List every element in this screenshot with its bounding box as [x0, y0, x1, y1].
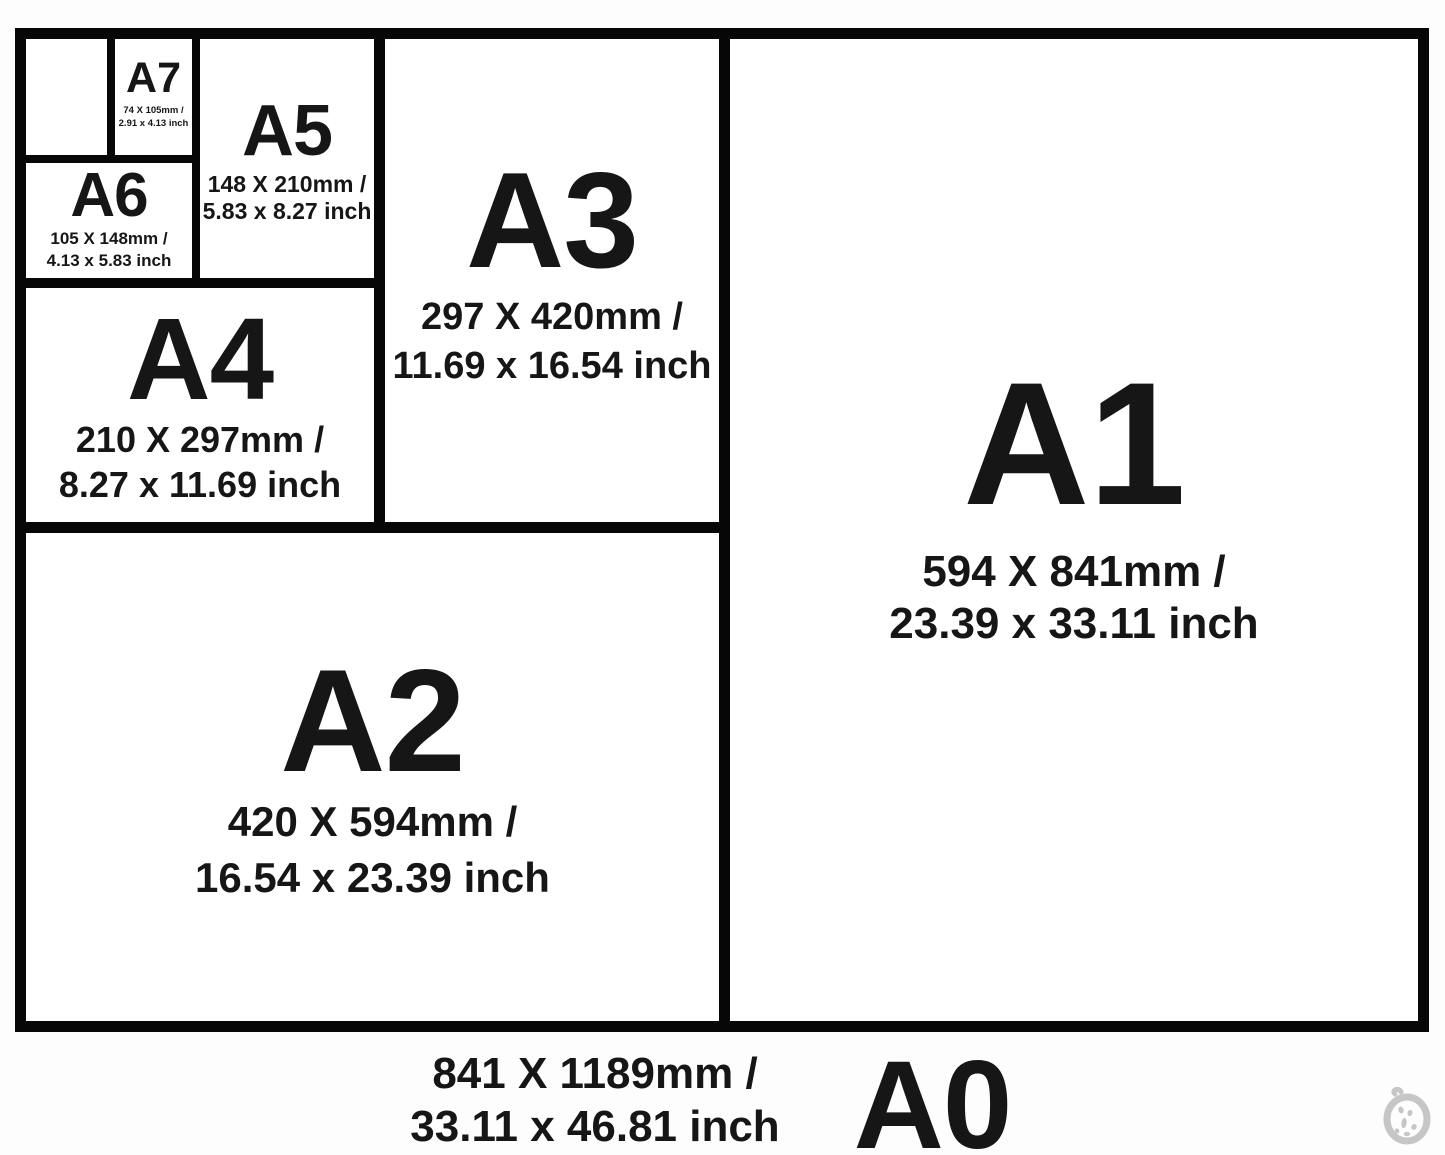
a0-dimensions-caption: 841 X 1189mm / 33.11 x 46.81 inch	[295, 1047, 895, 1153]
a6-inch-dimensions: 4.13 x 5.83 inch	[26, 250, 192, 272]
a0-label-block: A0	[845, 1043, 1020, 1155]
a3-inch-dimensions: 11.69 x 16.54 inch	[385, 342, 719, 391]
a2-size-label: A2	[26, 648, 719, 794]
a7-mm-dimensions: 74 X 105mm /	[115, 104, 192, 117]
divider-a2-top	[15, 522, 730, 533]
a7-inch-dimensions: 2.91 x 4.13 inch	[115, 117, 192, 130]
a6-mm-dimensions: 105 X 148mm /	[26, 228, 192, 250]
a3-cell: A3 297 X 420mm / 11.69 x 16.54 inch	[385, 152, 719, 391]
a7-cell: A7 74 X 105mm / 2.91 x 4.13 inch	[115, 57, 192, 130]
a4-mm-dimensions: 210 X 297mm /	[26, 417, 374, 462]
a1-inch-dimensions: 23.39 x 33.11 inch	[730, 598, 1418, 650]
a2-inch-dimensions: 16.54 x 23.39 inch	[26, 850, 719, 906]
a1-size-label: A1	[730, 357, 1418, 532]
a4-cell: A4 210 X 297mm / 8.27 x 11.69 inch	[26, 301, 374, 507]
a1-cell: A1 594 X 841mm / 23.39 x 33.11 inch	[730, 357, 1418, 650]
a6-cell: A6 105 X 148mm / 4.13 x 5.83 inch	[26, 165, 192, 272]
a1-mm-dimensions: 594 X 841mm /	[730, 546, 1418, 598]
a0-mm-dimensions: 841 X 1189mm /	[295, 1047, 895, 1100]
divider-a7-left	[107, 28, 115, 163]
a2-mm-dimensions: 420 X 594mm /	[26, 794, 719, 850]
paper-sizes-diagram: A1 594 X 841mm / 23.39 x 33.11 inch A2 4…	[0, 0, 1445, 1155]
a0-inch-dimensions: 33.11 x 46.81 inch	[295, 1100, 895, 1153]
a0-size-label: A0	[845, 1043, 1020, 1155]
a4-inch-dimensions: 8.27 x 11.69 inch	[26, 462, 374, 507]
unlabeled-small-cell	[26, 39, 107, 155]
a5-size-label: A5	[200, 95, 374, 167]
a6-size-label: A6	[26, 165, 192, 227]
divider-a4-top	[15, 278, 385, 288]
a3-size-label: A3	[385, 152, 719, 288]
watermark-logo-icon	[1381, 1086, 1433, 1148]
a5-inch-dimensions: 5.83 x 8.27 inch	[200, 198, 374, 225]
a5-cell: A5 148 X 210mm / 5.83 x 8.27 inch	[200, 95, 374, 225]
a2-cell: A2 420 X 594mm / 16.54 x 23.39 inch	[26, 648, 719, 906]
a5-mm-dimensions: 148 X 210mm /	[200, 171, 374, 198]
a4-size-label: A4	[26, 301, 374, 417]
a3-mm-dimensions: 297 X 420mm /	[385, 293, 719, 342]
a7-size-label: A7	[115, 57, 192, 100]
